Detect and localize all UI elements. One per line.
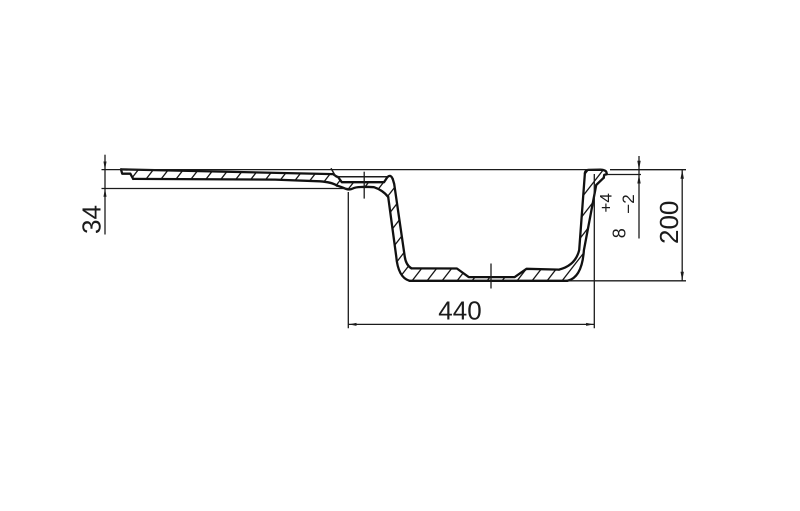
svg-text:+4: +4	[597, 193, 616, 212]
svg-text:34: 34	[77, 205, 107, 234]
svg-text:440: 440	[438, 296, 481, 326]
svg-text:8: 8	[610, 228, 630, 238]
svg-text:200: 200	[654, 201, 684, 244]
svg-text:−2: −2	[619, 194, 638, 213]
